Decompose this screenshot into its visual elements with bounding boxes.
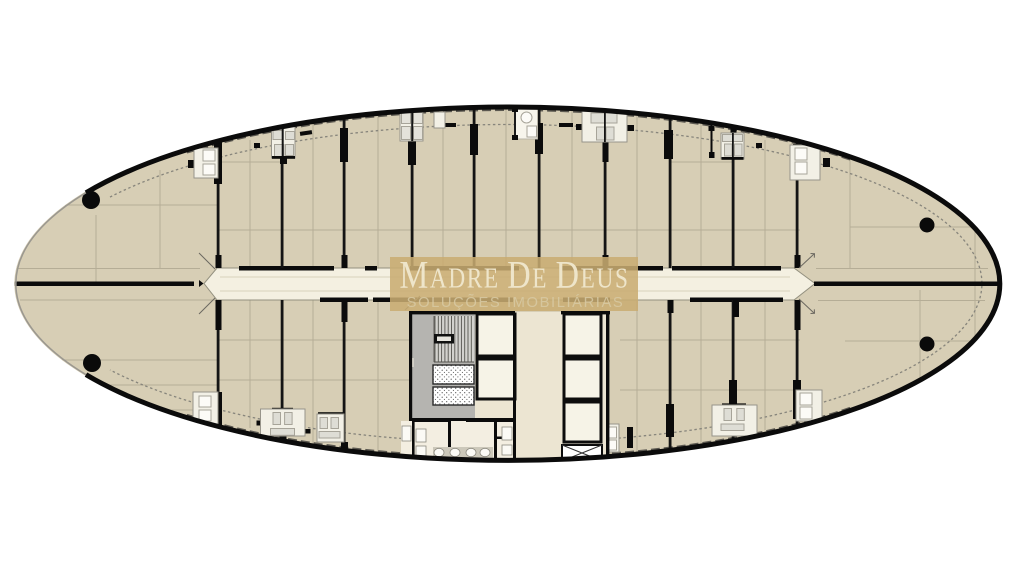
svg-text:SOLUÇÕES IMOBILIÁRIAS: SOLUÇÕES IMOBILIÁRIAS (407, 294, 625, 311)
